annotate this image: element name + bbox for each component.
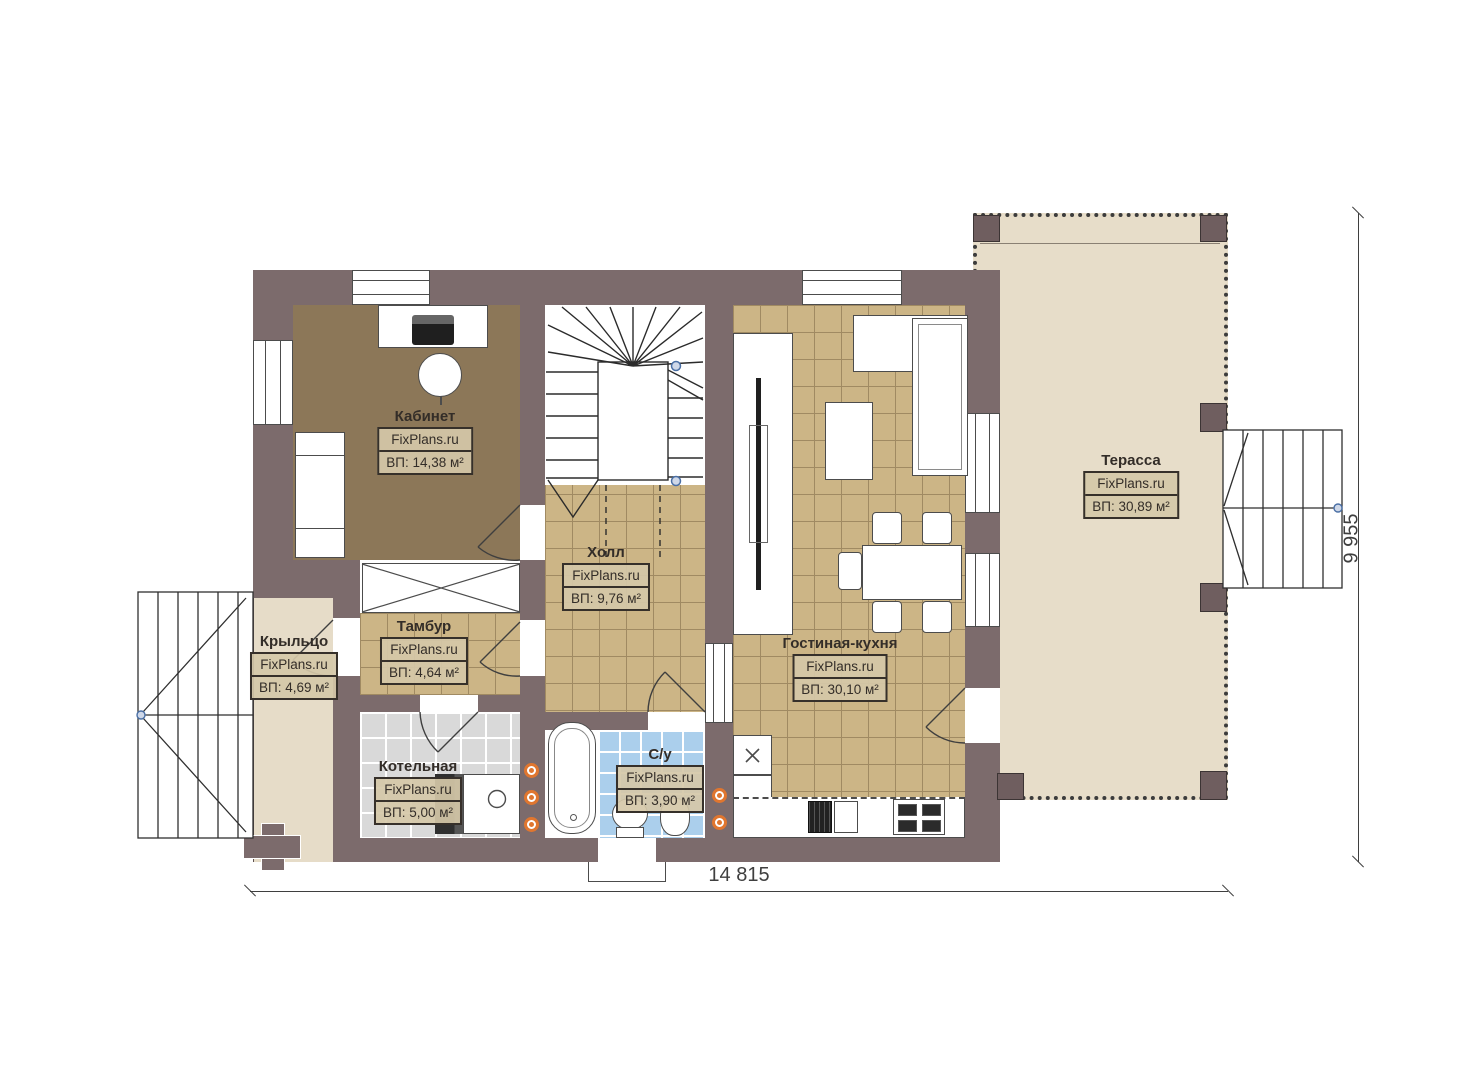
watermark: FixPlans.ru	[618, 767, 702, 788]
room-label-gostinaya: Гостиная-кухня FixPlans.ru ВП: 30,10 м²	[783, 635, 898, 702]
room-label-box: FixPlans.ru ВП: 30,10 м²	[792, 654, 888, 702]
room-name: С/у	[648, 746, 671, 763]
boiler-dial	[489, 791, 506, 808]
level-marker	[672, 362, 681, 371]
watermark: FixPlans.ru	[1085, 473, 1177, 494]
door-arc	[420, 712, 478, 752]
room-label-kotelnaya: Котельная FixPlans.ru ВП: 5,00 м²	[374, 758, 462, 825]
door-arc	[478, 505, 520, 560]
room-name: Гостиная-кухня	[783, 635, 898, 652]
watermark: FixPlans.ru	[564, 565, 648, 586]
room-label-terassa: Терасса FixPlans.ru ВП: 30,89 м²	[1083, 452, 1179, 519]
plan-linework	[0, 0, 1473, 1080]
room-name: Кабинет	[395, 408, 456, 425]
room-area: ВП: 30,89 м²	[1085, 494, 1177, 517]
closet-x-mark	[362, 564, 520, 612]
room-area: ВП: 14,38 м²	[379, 450, 471, 473]
dimension-width-label: 14 815	[708, 864, 769, 887]
room-label-box: FixPlans.ru ВП: 14,38 м²	[377, 427, 473, 475]
room-area: ВП: 4,64 м²	[382, 660, 466, 683]
room-label-su: С/у FixPlans.ru ВП: 3,90 м²	[616, 746, 704, 813]
room-name: Терасса	[1101, 452, 1160, 469]
room-label-tambur: Тамбур FixPlans.ru ВП: 4,64 м²	[380, 618, 468, 685]
room-label-box: FixPlans.ru ВП: 5,00 м²	[374, 777, 462, 825]
watermark: FixPlans.ru	[379, 429, 471, 450]
room-area: ВП: 9,76 м²	[564, 586, 648, 609]
room-name: Тамбур	[397, 618, 451, 635]
room-label-box: FixPlans.ru ВП: 3,90 м²	[616, 765, 704, 813]
door-arc	[926, 688, 965, 743]
room-name: Холл	[587, 544, 625, 561]
room-label-box: FixPlans.ru ВП: 30,89 м²	[1083, 471, 1179, 519]
room-area: ВП: 4,69 м²	[252, 675, 336, 698]
room-name: Крыльцо	[260, 633, 328, 650]
room-label-kabinet: Кабинет FixPlans.ru ВП: 14,38 м²	[377, 408, 473, 475]
terrace-steps	[1223, 430, 1342, 588]
porch-steps	[138, 592, 253, 838]
room-area: ВП: 5,00 м²	[376, 800, 460, 823]
watermark: FixPlans.ru	[794, 656, 886, 677]
door-arc	[648, 672, 705, 712]
room-label-holl: Холл FixPlans.ru ВП: 9,76 м²	[562, 544, 650, 611]
fridge-x-mark	[746, 749, 759, 762]
room-area: ВП: 3,90 м²	[618, 788, 702, 811]
level-marker	[672, 477, 681, 486]
room-label-box: FixPlans.ru ВП: 4,64 м²	[380, 637, 468, 685]
watermark: FixPlans.ru	[376, 779, 460, 800]
room-area: ВП: 30,10 м²	[794, 677, 886, 700]
level-marker	[137, 711, 145, 719]
door-arc	[480, 622, 520, 676]
room-label-box: FixPlans.ru ВП: 4,69 м²	[250, 652, 338, 700]
room-label-krylco: Крыльцо FixPlans.ru ВП: 4,69 м²	[250, 633, 338, 700]
dimension-height-label: 9 955	[1341, 509, 1364, 569]
main-staircase	[546, 307, 703, 560]
floor-plan: Кабинет FixPlans.ru ВП: 14,38 м² Холл Fi…	[0, 0, 1473, 1080]
dimension-line-bottom	[250, 891, 1228, 892]
watermark: FixPlans.ru	[382, 639, 466, 660]
watermark: FixPlans.ru	[252, 654, 336, 675]
room-label-box: FixPlans.ru ВП: 9,76 м²	[562, 563, 650, 611]
room-name: Котельная	[379, 758, 458, 775]
